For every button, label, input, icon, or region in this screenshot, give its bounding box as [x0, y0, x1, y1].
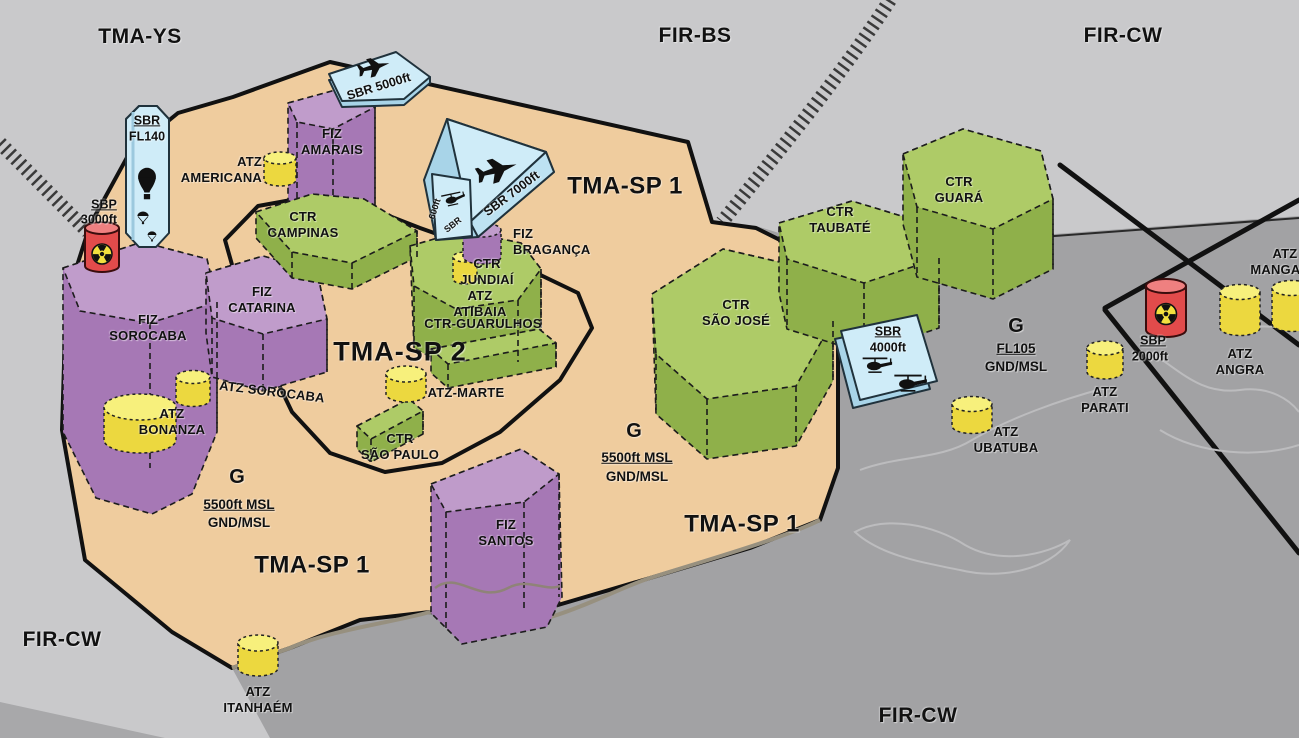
label-sbr-fl140-limit: FL140	[129, 129, 165, 144]
label-atz-angra: ATZ ANGRA	[1216, 346, 1265, 378]
label-atz-ubatuba: ATZ UBATUBA	[974, 424, 1039, 456]
label-ctr-sao-paulo: CTR SÃO PAULO	[361, 431, 439, 463]
label-sbr-fl140-name: SBR	[134, 113, 160, 128]
label-tma-sp1-bottom: TMA-SP 1	[254, 550, 370, 579]
label-fir-cw-top: FIR-CW	[1084, 23, 1163, 49]
label-ctr-guara: CTR GUARÁ	[935, 174, 984, 206]
radioactive-icon	[1155, 304, 1176, 325]
label-fiz-braganca: FIZ BRAGANÇA	[513, 226, 590, 258]
label-sbp-east-limit: 2000ft	[1132, 349, 1168, 364]
class-g-coastal-floor: GND/MSL	[985, 359, 1047, 375]
class-g-east-floor: GND/MSL	[606, 469, 668, 485]
airspace-diagram: TMA-YS FIR-BS FIR-CW FIR-CW FIR-CW TMA-S…	[0, 0, 1299, 738]
label-atz-mangaratiba: ATZ MANGARA	[1250, 246, 1299, 278]
label-fiz-sorocaba: FIZ SOROCABA	[109, 312, 186, 344]
label-ctr-taubate: CTR TAUBATÉ	[809, 204, 871, 236]
class-g-east-limit: 5500ft MSL	[601, 450, 672, 466]
atz-itanhaem-cylinder	[238, 635, 278, 676]
atz-mangaratiba-cylinder	[1272, 281, 1299, 332]
class-g-west-limit: 5500ft MSL	[203, 497, 274, 513]
radioactive-icon	[92, 244, 112, 264]
atz-marte-cylinder	[386, 366, 426, 402]
label-atz-atibaia: ATZ ATIBAIA	[453, 288, 506, 320]
atz-angra-cylinder	[1220, 285, 1260, 336]
atz-sorocaba-cylinder	[176, 371, 210, 407]
label-sbr-4000-name: SBR	[875, 324, 901, 339]
label-atz-americana: ATZ AMERICANA	[181, 154, 262, 186]
label-ctr-sao-jose: CTR SÃO JOSÉ	[702, 297, 770, 329]
label-sbp-east-name: SBP	[1140, 333, 1166, 348]
class-g-coastal: G	[1008, 314, 1024, 338]
atz-parati-cylinder	[1087, 341, 1123, 379]
label-ctr-campinas: CTR CAMPINAS	[268, 209, 339, 241]
class-g-coastal-limit: FL105	[996, 341, 1035, 357]
atz-americana-cylinder	[264, 152, 296, 186]
class-g-west-floor: GND/MSL	[208, 515, 270, 531]
ctr-guara-zone	[903, 129, 1053, 299]
label-ctr-jundiai: CTR JUNDIAÍ	[460, 256, 513, 288]
label-atz-marte: ATZ-MARTE	[428, 385, 505, 401]
label-tma-ys: TMA-YS	[98, 24, 182, 50]
class-g-west: G	[229, 465, 245, 489]
label-sbp-west-limit: 3000ft	[81, 212, 117, 227]
class-g-east: G	[626, 419, 642, 443]
label-atz-itanhaem: ATZ ITANHAÉM	[223, 684, 292, 716]
label-atz-parati: ATZ PARATI	[1081, 384, 1129, 416]
label-fir-cw-bottom-center: FIR-CW	[879, 703, 958, 729]
label-sbr-4000-limit: 4000ft	[870, 340, 906, 355]
label-fiz-catarina: FIZ CATARINA	[228, 284, 296, 316]
label-fir-cw-bottom-left: FIR-CW	[23, 627, 102, 653]
label-tma-sp2: TMA-SP 2	[333, 336, 467, 369]
label-atz-bonanza: ATZ BONANZA	[139, 406, 205, 438]
label-fiz-santos: FIZ SANTOS	[478, 517, 533, 549]
airspace-map	[0, 0, 1299, 738]
label-fir-bs: FIR-BS	[659, 23, 732, 49]
label-tma-sp1-top: TMA-SP 1	[567, 171, 683, 200]
label-tma-sp1-mid: TMA-SP 1	[684, 509, 800, 538]
label-fiz-amarais: FIZ AMARAIS	[301, 126, 363, 158]
label-sbp-west-name: SBP	[91, 197, 117, 212]
